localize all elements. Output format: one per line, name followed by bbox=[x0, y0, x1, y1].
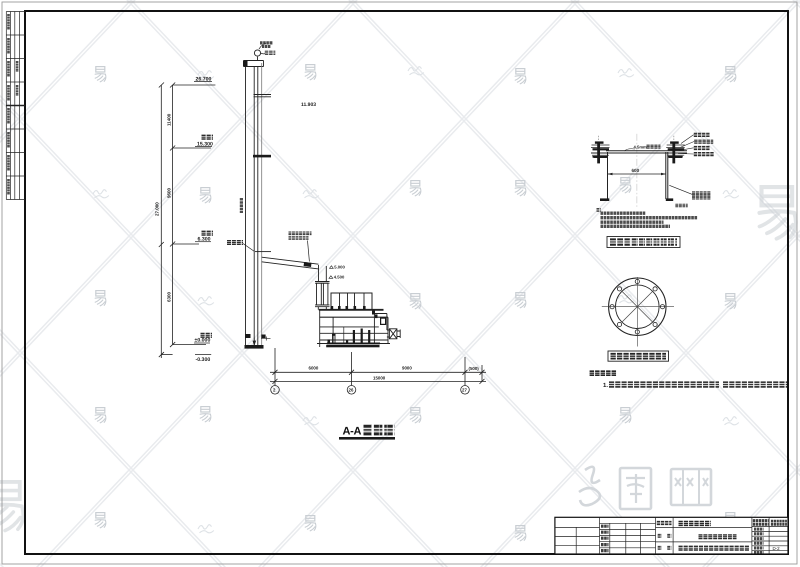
svg-text:6000: 6000 bbox=[309, 365, 319, 370]
svg-text:D-2: D-2 bbox=[773, 546, 781, 551]
svg-text:6300: 6300 bbox=[167, 291, 172, 302]
svg-text:27: 27 bbox=[462, 388, 467, 393]
svg-text:4.500: 4.500 bbox=[334, 275, 345, 280]
svg-text:27.000: 27.000 bbox=[155, 202, 160, 216]
svg-text:1.: 1. bbox=[603, 382, 608, 389]
svg-text:9000: 9000 bbox=[402, 365, 412, 370]
svg-text:600: 600 bbox=[632, 168, 640, 173]
svg-text:-0.300: -0.300 bbox=[196, 357, 211, 363]
svg-text:4.5mm: 4.5mm bbox=[634, 144, 648, 149]
svg-text:11400: 11400 bbox=[167, 113, 172, 126]
svg-text:A-A: A-A bbox=[343, 425, 362, 437]
svg-text:15000: 15000 bbox=[373, 376, 386, 381]
svg-text:5.000: 5.000 bbox=[334, 265, 345, 270]
svg-text:11.903: 11.903 bbox=[301, 102, 316, 108]
svg-text:26: 26 bbox=[349, 388, 354, 393]
svg-text:(500): (500) bbox=[469, 366, 480, 371]
svg-text:9600: 9600 bbox=[167, 187, 172, 198]
